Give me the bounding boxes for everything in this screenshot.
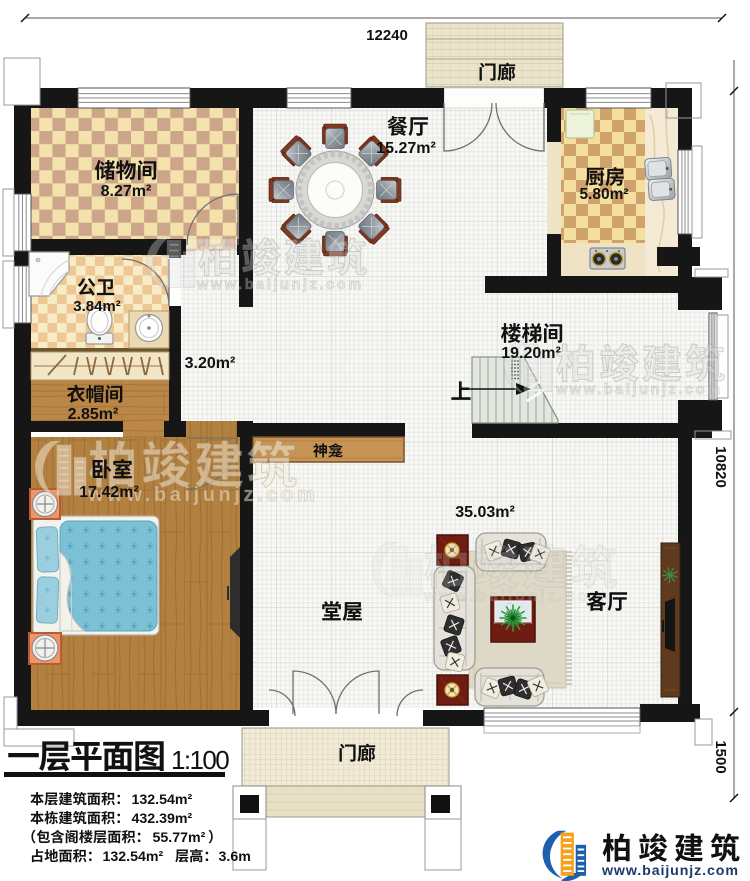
svg-text:10820: 10820 (712, 446, 729, 488)
svg-text:1500: 1500 (712, 740, 729, 773)
svg-text:www.baijunjz.com: www.baijunjz.com (601, 863, 739, 879)
svg-text:3.20m²: 3.20m² (185, 355, 236, 372)
svg-text:15.27m²: 15.27m² (376, 140, 436, 157)
svg-text:132.54m²: 132.54m² (132, 792, 193, 808)
svg-text:8.27m²: 8.27m² (101, 183, 152, 200)
svg-text:www.baijunjz.com: www.baijunjz.com (423, 588, 607, 605)
svg-text:132.54m²: 132.54m² (103, 849, 164, 865)
svg-text:432.39m²: 432.39m² (132, 811, 193, 827)
svg-text:3.6m: 3.6m (219, 849, 251, 865)
svg-text:12240: 12240 (366, 27, 408, 44)
svg-text:17.42m²: 17.42m² (79, 484, 139, 501)
svg-text:35.03m²: 35.03m² (455, 504, 515, 521)
svg-text:55.77m²: 55.77m² (153, 830, 206, 846)
svg-text:2.85m²: 2.85m² (68, 406, 119, 423)
svg-text:1:100: 1:100 (171, 745, 229, 775)
svg-text:19.20m²: 19.20m² (501, 345, 561, 362)
svg-text:3.84m²: 3.84m² (73, 298, 121, 315)
svg-text:www.baijunjz.com: www.baijunjz.com (196, 277, 364, 293)
svg-text:5.80m²: 5.80m² (579, 186, 628, 203)
svg-text:www.baijunjz.com: www.baijunjz.com (555, 382, 723, 398)
